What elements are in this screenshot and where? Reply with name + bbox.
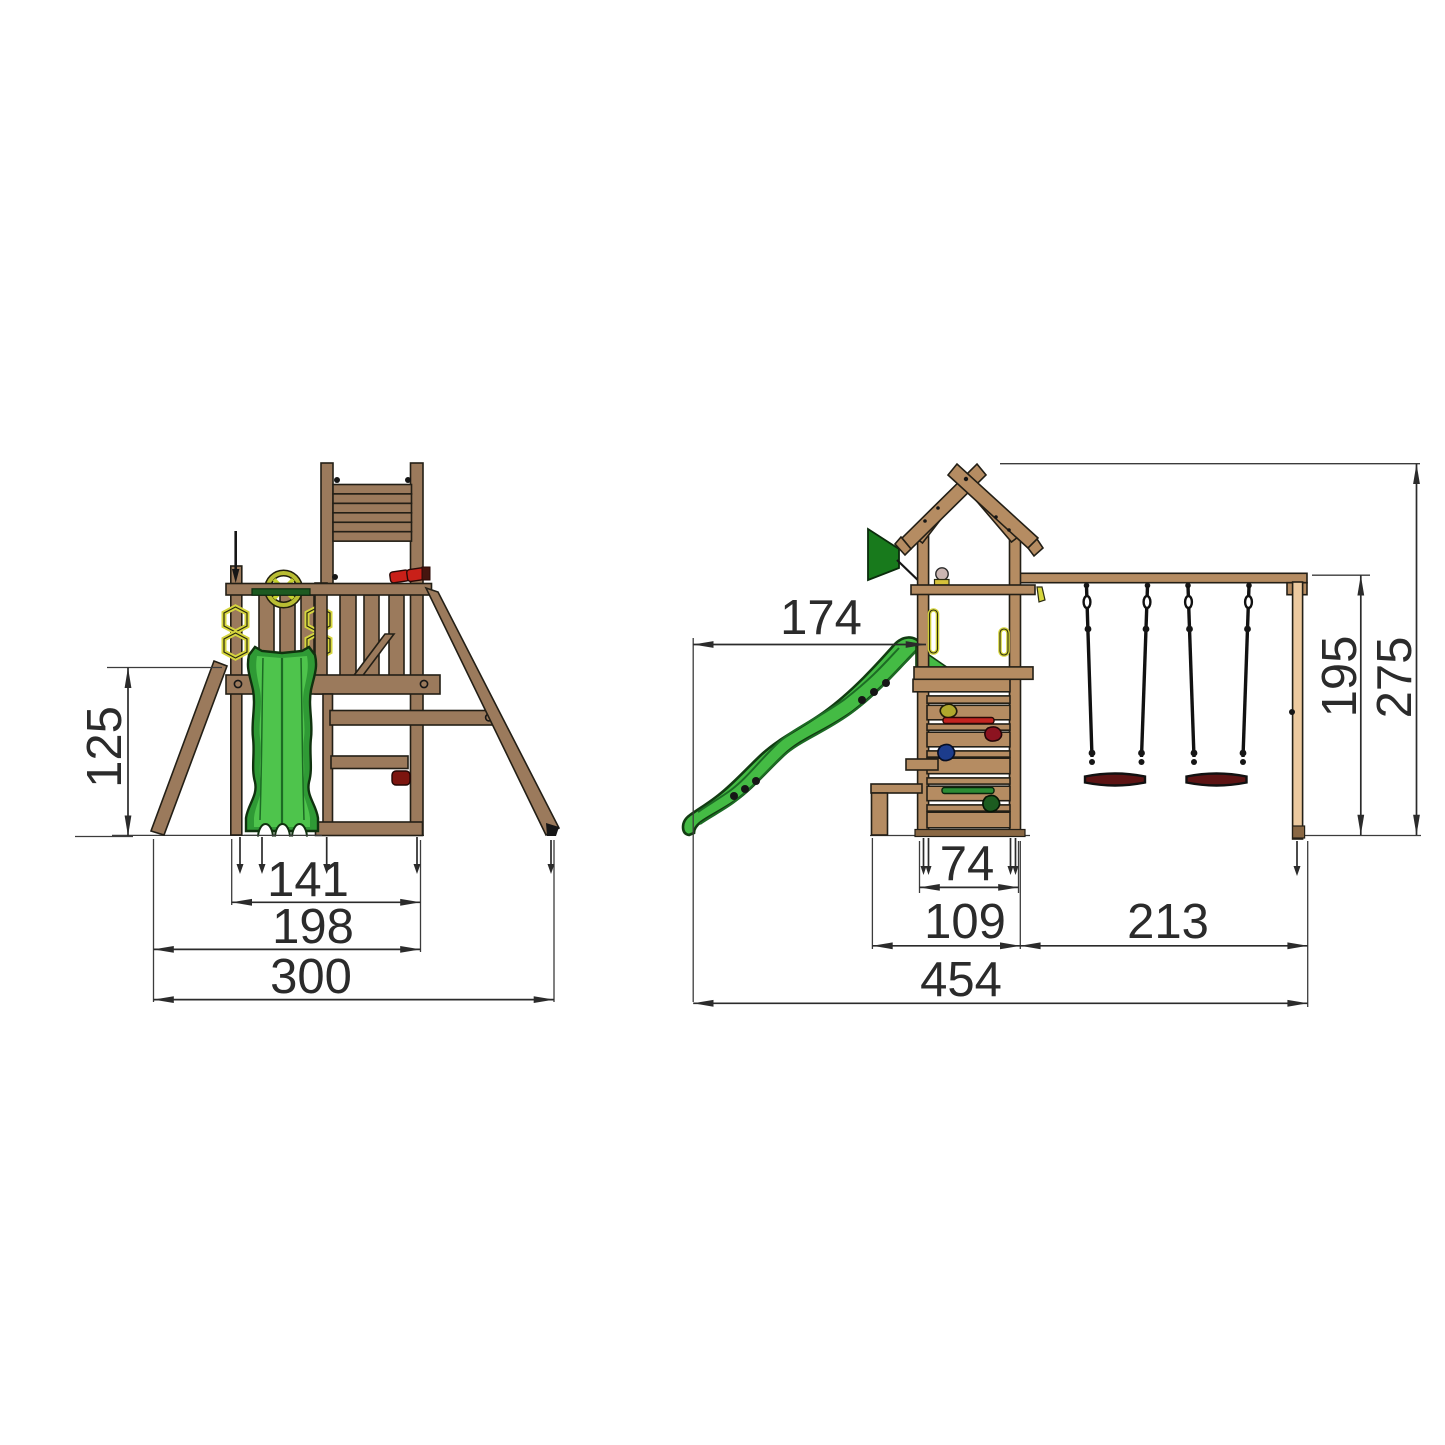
svg-text:109: 109 xyxy=(924,895,1006,949)
svg-text:454: 454 xyxy=(920,953,1002,1007)
svg-text:300: 300 xyxy=(270,950,352,1004)
svg-text:198: 198 xyxy=(272,900,354,954)
svg-text:141: 141 xyxy=(267,853,349,907)
svg-text:195: 195 xyxy=(1313,636,1367,718)
svg-text:213: 213 xyxy=(1127,895,1209,949)
svg-text:74: 74 xyxy=(940,837,995,891)
svg-text:174: 174 xyxy=(780,591,862,645)
svg-text:125: 125 xyxy=(78,706,132,788)
svg-text:275: 275 xyxy=(1368,637,1422,719)
